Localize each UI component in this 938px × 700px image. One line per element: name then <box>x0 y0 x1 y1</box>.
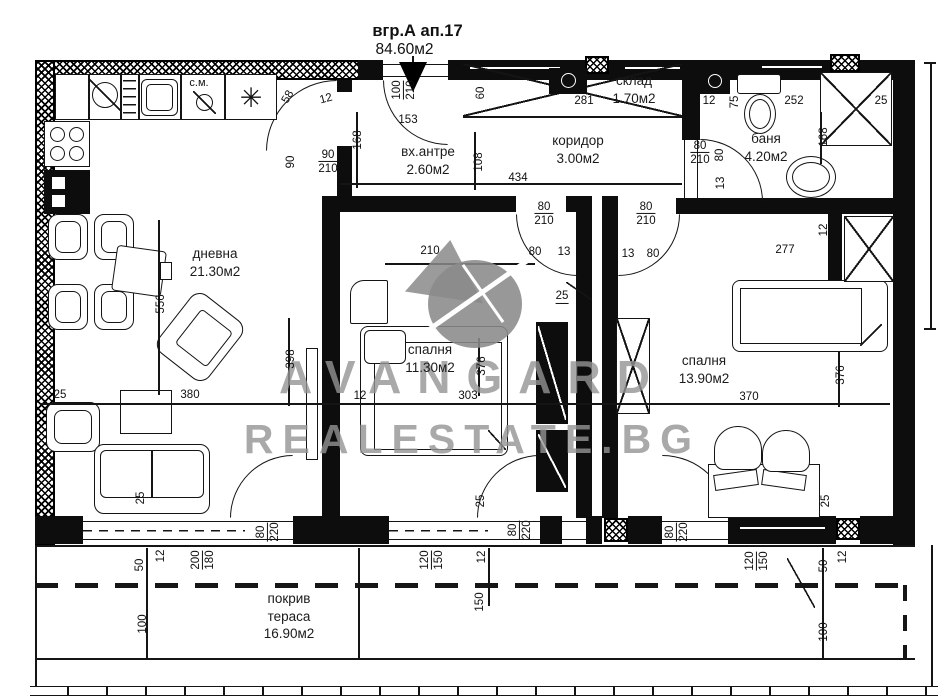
dimension-label: 80210 <box>690 140 709 166</box>
dimension-label: 80 <box>647 248 660 260</box>
boiler-dial <box>708 74 722 88</box>
wall-slit <box>740 527 825 529</box>
dimension-label: 25 <box>556 290 569 304</box>
watermark-line2: REALESTATE.BG <box>215 416 730 463</box>
wall-bath-left <box>682 60 700 140</box>
dimension-label: 12 <box>818 224 830 237</box>
dimension-label: 100210 <box>391 80 417 99</box>
dimension-label: 252 <box>784 95 803 107</box>
room-area: 1.70м2 <box>584 90 684 108</box>
room-name: дневна <box>150 245 280 263</box>
dim-line <box>488 548 490 606</box>
wall-right <box>893 60 915 545</box>
dimension-label: 12 <box>703 95 716 107</box>
chair-inner <box>54 410 92 444</box>
nightstand-icon <box>350 280 388 324</box>
dimension-label: 80220 <box>664 522 690 541</box>
dimension-label: 25 <box>875 95 888 107</box>
terrace-line <box>35 545 915 547</box>
dimension-label: 100 <box>137 614 149 633</box>
dimension-label: 80210 <box>636 201 655 227</box>
dim-line <box>356 112 358 188</box>
storage-floor-line <box>463 116 682 118</box>
wall-bottom <box>586 516 602 544</box>
chair-inner <box>55 221 81 253</box>
room-area: 4.20м2 <box>716 148 816 166</box>
dimension-label: 12 <box>837 551 849 564</box>
dimension-label: 12 <box>155 550 167 563</box>
shaft-box-icon <box>604 518 628 542</box>
storage-unit-dial-icon <box>561 73 576 88</box>
terrace-edge <box>35 545 37 687</box>
dimension-label: 303 <box>458 390 477 402</box>
terrace-line <box>35 658 915 660</box>
window <box>562 521 586 540</box>
wall-corridor-bedroom1 <box>322 196 516 212</box>
wall-bottom <box>860 516 915 544</box>
dimension-label: 210 <box>420 245 439 257</box>
bedroom1-terrace-door-arc <box>477 455 540 518</box>
dimension-label: 13 <box>622 248 635 260</box>
dimension-label: 50 <box>134 559 146 572</box>
toilet-bowl-inner <box>749 99 771 129</box>
dimension-label: 281 <box>574 95 593 107</box>
chair-inner <box>55 291 81 323</box>
edge-line <box>930 62 932 330</box>
window <box>389 521 488 540</box>
wall-bottom <box>35 516 83 544</box>
dimension-label: 277 <box>775 244 794 256</box>
room-label-bath: баня 4.20м2 <box>716 130 816 165</box>
wall-bottom <box>728 516 836 544</box>
terrace-edge <box>931 545 933 687</box>
cooktop-slash <box>89 79 121 111</box>
room-name: склад <box>584 72 684 90</box>
room-name: коридор <box>528 132 628 150</box>
plan-total-area: 84.60м2 <box>322 41 487 59</box>
dimension-label: 25 <box>135 492 147 505</box>
dimension-label: 12 <box>354 390 367 402</box>
sink-basin-inner <box>792 162 830 192</box>
dimension-label: 376 <box>835 365 847 384</box>
room-label-entry: вх.антре 2.60м2 <box>378 143 478 178</box>
wardrobe-cross-icon <box>844 216 894 282</box>
dimension-label: 50 <box>818 560 830 573</box>
terrace-dashed-boundary <box>35 583 915 588</box>
fridge-detail <box>52 195 65 207</box>
dimension-label: 12 <box>476 551 488 564</box>
burner <box>69 127 84 142</box>
dimension-label: 80220 <box>507 520 533 539</box>
sofa-divider <box>151 450 153 498</box>
freezer-symbol: ✳ <box>227 79 275 117</box>
coffee-table-icon <box>120 390 172 434</box>
dim-line <box>146 548 148 658</box>
toilet-cistern-icon <box>737 74 781 94</box>
wall-bottom <box>628 516 662 544</box>
dimension-label: 13 <box>558 246 571 258</box>
dimension-label: 556 <box>155 294 167 313</box>
wall-top <box>358 60 383 80</box>
dimension-label: 90210 <box>318 149 337 175</box>
dimension-label: 380 <box>180 389 199 401</box>
dimension-label: 150 <box>474 592 486 611</box>
dimension-label: 75 <box>729 96 741 109</box>
dimension-label: 25 <box>820 495 832 508</box>
room-area: 2.60м2 <box>378 161 478 179</box>
dimension-label: 100 <box>818 622 830 641</box>
dimension-label: 80220 <box>255 522 281 541</box>
dimension-label: 153 <box>398 114 417 126</box>
chair-inner <box>101 291 127 323</box>
terrace-dashed-right <box>903 585 907 660</box>
room-label-corridor: коридор 3.00м2 <box>528 132 628 167</box>
washing-machine-slash <box>193 91 216 114</box>
dimension-label: 120150 <box>744 551 770 570</box>
room-name: вх.антре <box>378 143 478 161</box>
dimension-label: 108 <box>473 152 485 171</box>
dish-rack-icon <box>123 80 136 116</box>
dimension-label: 120150 <box>419 550 445 569</box>
terrace-parapet <box>30 686 938 696</box>
office-chair-icon <box>762 430 810 472</box>
dimension-label: 60 <box>475 87 487 100</box>
dimension-label: 370 <box>739 391 758 403</box>
dimension-label: 25 <box>475 495 487 508</box>
burner <box>50 127 65 142</box>
dimension-label: 398 <box>285 349 297 368</box>
dimension-label: 168 <box>818 127 830 146</box>
room-label-bedroom1: спалня 11.30м2 <box>380 341 480 376</box>
dimension-label: 90 <box>285 156 297 169</box>
wall-slit <box>762 66 822 68</box>
room-area: 13.90м2 <box>654 370 754 388</box>
room-name: баня <box>716 130 816 148</box>
room-name: покрив тераса <box>249 590 329 625</box>
dimension-label: 80210 <box>534 201 553 227</box>
dimension-label: 434 <box>508 172 527 184</box>
dimension-label: 25 <box>54 389 67 401</box>
edge-tick <box>924 62 936 64</box>
wall-stub-bedroom2 <box>828 214 842 284</box>
dimension-label: 376 <box>476 356 488 375</box>
bed-fold <box>860 324 882 346</box>
wall-kitchen-entry <box>337 80 352 92</box>
edge-tick <box>924 328 936 330</box>
floor-plan: вгр.А ап.17 84.60м2 <box>0 0 938 700</box>
dim-line <box>358 548 360 658</box>
bed-inner <box>740 288 862 344</box>
burner <box>50 146 65 161</box>
plan-title: вгр.А ап.17 <box>330 22 505 41</box>
dimension-label: 200180 <box>190 550 216 569</box>
room-name: спалня <box>380 341 480 359</box>
terrace-diag <box>787 558 815 608</box>
shaft-box-icon <box>836 518 860 540</box>
shower-icon <box>820 72 892 146</box>
window <box>83 521 245 540</box>
wall-bottom <box>540 516 562 544</box>
room-area: 21.30м2 <box>150 263 280 281</box>
leader-line <box>566 282 592 300</box>
room-label-living: дневна 21.30м2 <box>150 245 280 280</box>
living-terrace-door-arc <box>230 455 293 518</box>
room-area: 11.30м2 <box>380 359 480 377</box>
room-label-storage: склад 1.70м2 <box>584 72 684 107</box>
dimension-label: 168 <box>352 130 364 149</box>
wall-bottom <box>293 516 389 544</box>
room-label-terrace: покрив тераса 16.90м2 <box>249 590 329 643</box>
fridge-icon <box>44 170 90 214</box>
washing-machine-label: с.м. <box>182 77 216 89</box>
room-label-bedroom2: спалня 13.90м2 <box>654 352 754 387</box>
dimension-label: 13 <box>715 177 727 190</box>
room-area: 3.00м2 <box>528 150 628 168</box>
counter-divider <box>138 74 140 120</box>
room-name: спалня <box>654 352 754 370</box>
room-area: 16.90м2 <box>249 625 329 643</box>
wall-kitchen-entry <box>337 146 352 198</box>
dimension-label: 80 <box>529 246 542 258</box>
dimension-label: 80 <box>714 149 726 162</box>
counter-divider <box>224 74 226 120</box>
stove-icon <box>44 121 90 167</box>
shaft-box-icon <box>830 54 860 72</box>
burner <box>69 146 84 161</box>
fridge-detail <box>52 177 65 189</box>
sink-basin <box>146 84 173 111</box>
